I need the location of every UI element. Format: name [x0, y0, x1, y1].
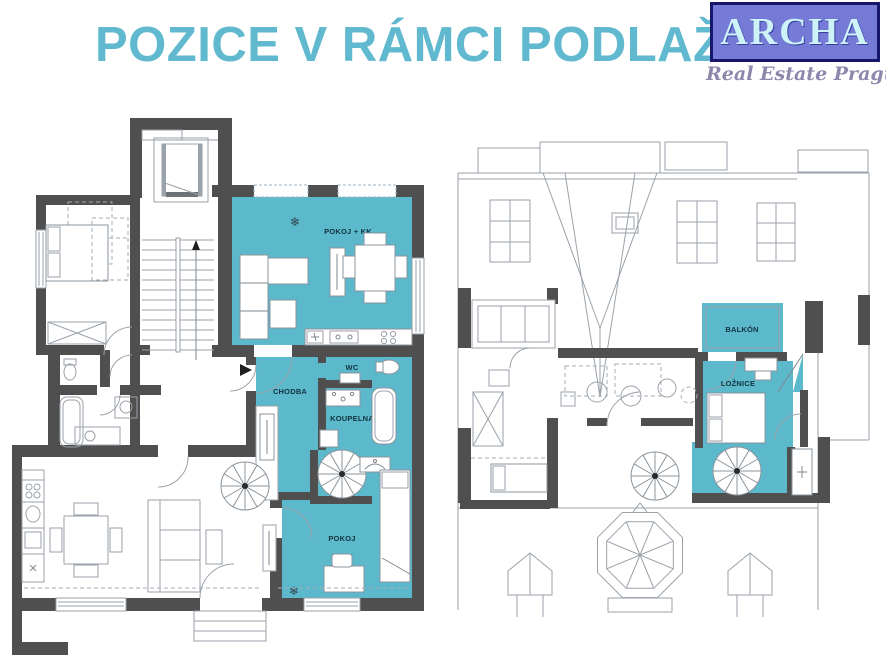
spiral-stairs-icon [221, 462, 269, 510]
snowflake-icon: ❄ [289, 584, 299, 598]
door-arc [200, 564, 234, 598]
chair-icon [587, 382, 607, 402]
window [677, 201, 717, 263]
desk-icon [489, 370, 509, 386]
logo-name: ARCHA [720, 13, 869, 51]
chimney [665, 142, 727, 170]
wardrobe-icon [792, 449, 812, 495]
toilet-icon [64, 359, 76, 380]
bed-icon [707, 393, 765, 443]
door-arc [100, 395, 120, 415]
door-arc [607, 392, 641, 426]
spiral-stairs-icon [713, 447, 761, 495]
room-label: KOUPELNA [330, 414, 374, 423]
studio-furniture [561, 364, 697, 406]
window [412, 258, 424, 334]
kitchen-counter-icon [305, 329, 412, 345]
window [304, 598, 360, 611]
roof-window [612, 213, 638, 233]
door-arc [158, 457, 188, 487]
dormer [728, 553, 772, 617]
door-arc [510, 348, 530, 368]
bathtub-icon [372, 388, 396, 444]
window [757, 203, 795, 261]
window [36, 230, 46, 288]
room-loznice-wedge [793, 354, 803, 392]
neighbour-bathroom [60, 355, 137, 447]
agency-logo: ARCHA Real Estate Prague [710, 2, 880, 85]
gable-roof-lines [543, 173, 657, 397]
room-label: CHODBA [273, 387, 307, 396]
window-dashed [338, 185, 396, 197]
gable-top [540, 142, 660, 173]
sink-icon [75, 427, 120, 445]
washer-icon [320, 430, 338, 447]
page: POZICE V RÁMCI PODLAŽÍ ARCHA Real Estate… [0, 0, 886, 661]
terrace-steps [194, 611, 266, 641]
roof-turret [598, 503, 683, 612]
plant-icon [681, 387, 697, 403]
small-sink-icon [340, 373, 360, 383]
wardrobe-icon [473, 392, 503, 446]
room-label: POKOJ [328, 534, 355, 543]
room-label: WC [346, 363, 359, 372]
neighbour-bedroom [46, 202, 132, 355]
window [56, 598, 126, 611]
spiral-stairs-icon [318, 450, 366, 498]
facade-windows [490, 200, 795, 263]
window-dashed [254, 185, 308, 197]
sink-icon [326, 390, 360, 406]
straight-stairs-icon [142, 238, 214, 352]
window [490, 200, 530, 262]
neighbour-living-room [22, 462, 276, 641]
dining-table-icon [50, 503, 122, 577]
room-label: LOŽNICE [721, 379, 755, 388]
logo-box: ARCHA [710, 2, 880, 62]
dormer-window-bay [472, 300, 555, 348]
logo-tagline: Real Estate Prague [706, 64, 876, 85]
floorplan-lower-level: ❄ POKOJ + KK [8, 118, 438, 658]
page-title: POZICE V RÁMCI PODLAŽÍ [95, 20, 738, 71]
chimney [798, 150, 868, 172]
elevator-icon [154, 138, 208, 202]
door-arc [110, 355, 132, 377]
stairs-direction-arrow [192, 240, 200, 250]
snowflake-icon: ❄ [290, 215, 300, 229]
dormer [508, 553, 552, 617]
spiral-stairs-icon [631, 452, 679, 500]
kitchen-counter-icon [22, 470, 44, 582]
chimney [478, 148, 540, 173]
sofa-icon [148, 500, 222, 592]
room-label: BALKÓN [725, 325, 758, 334]
radiator-icon [263, 525, 276, 571]
wardrobe-icon [48, 322, 106, 344]
bed-icon [491, 464, 547, 492]
bed-icon [380, 470, 410, 582]
toilet-icon [376, 360, 399, 374]
floorplan-attic-level: BALKÓN LOŽNICE [445, 140, 885, 625]
entry-arrow [240, 364, 252, 376]
